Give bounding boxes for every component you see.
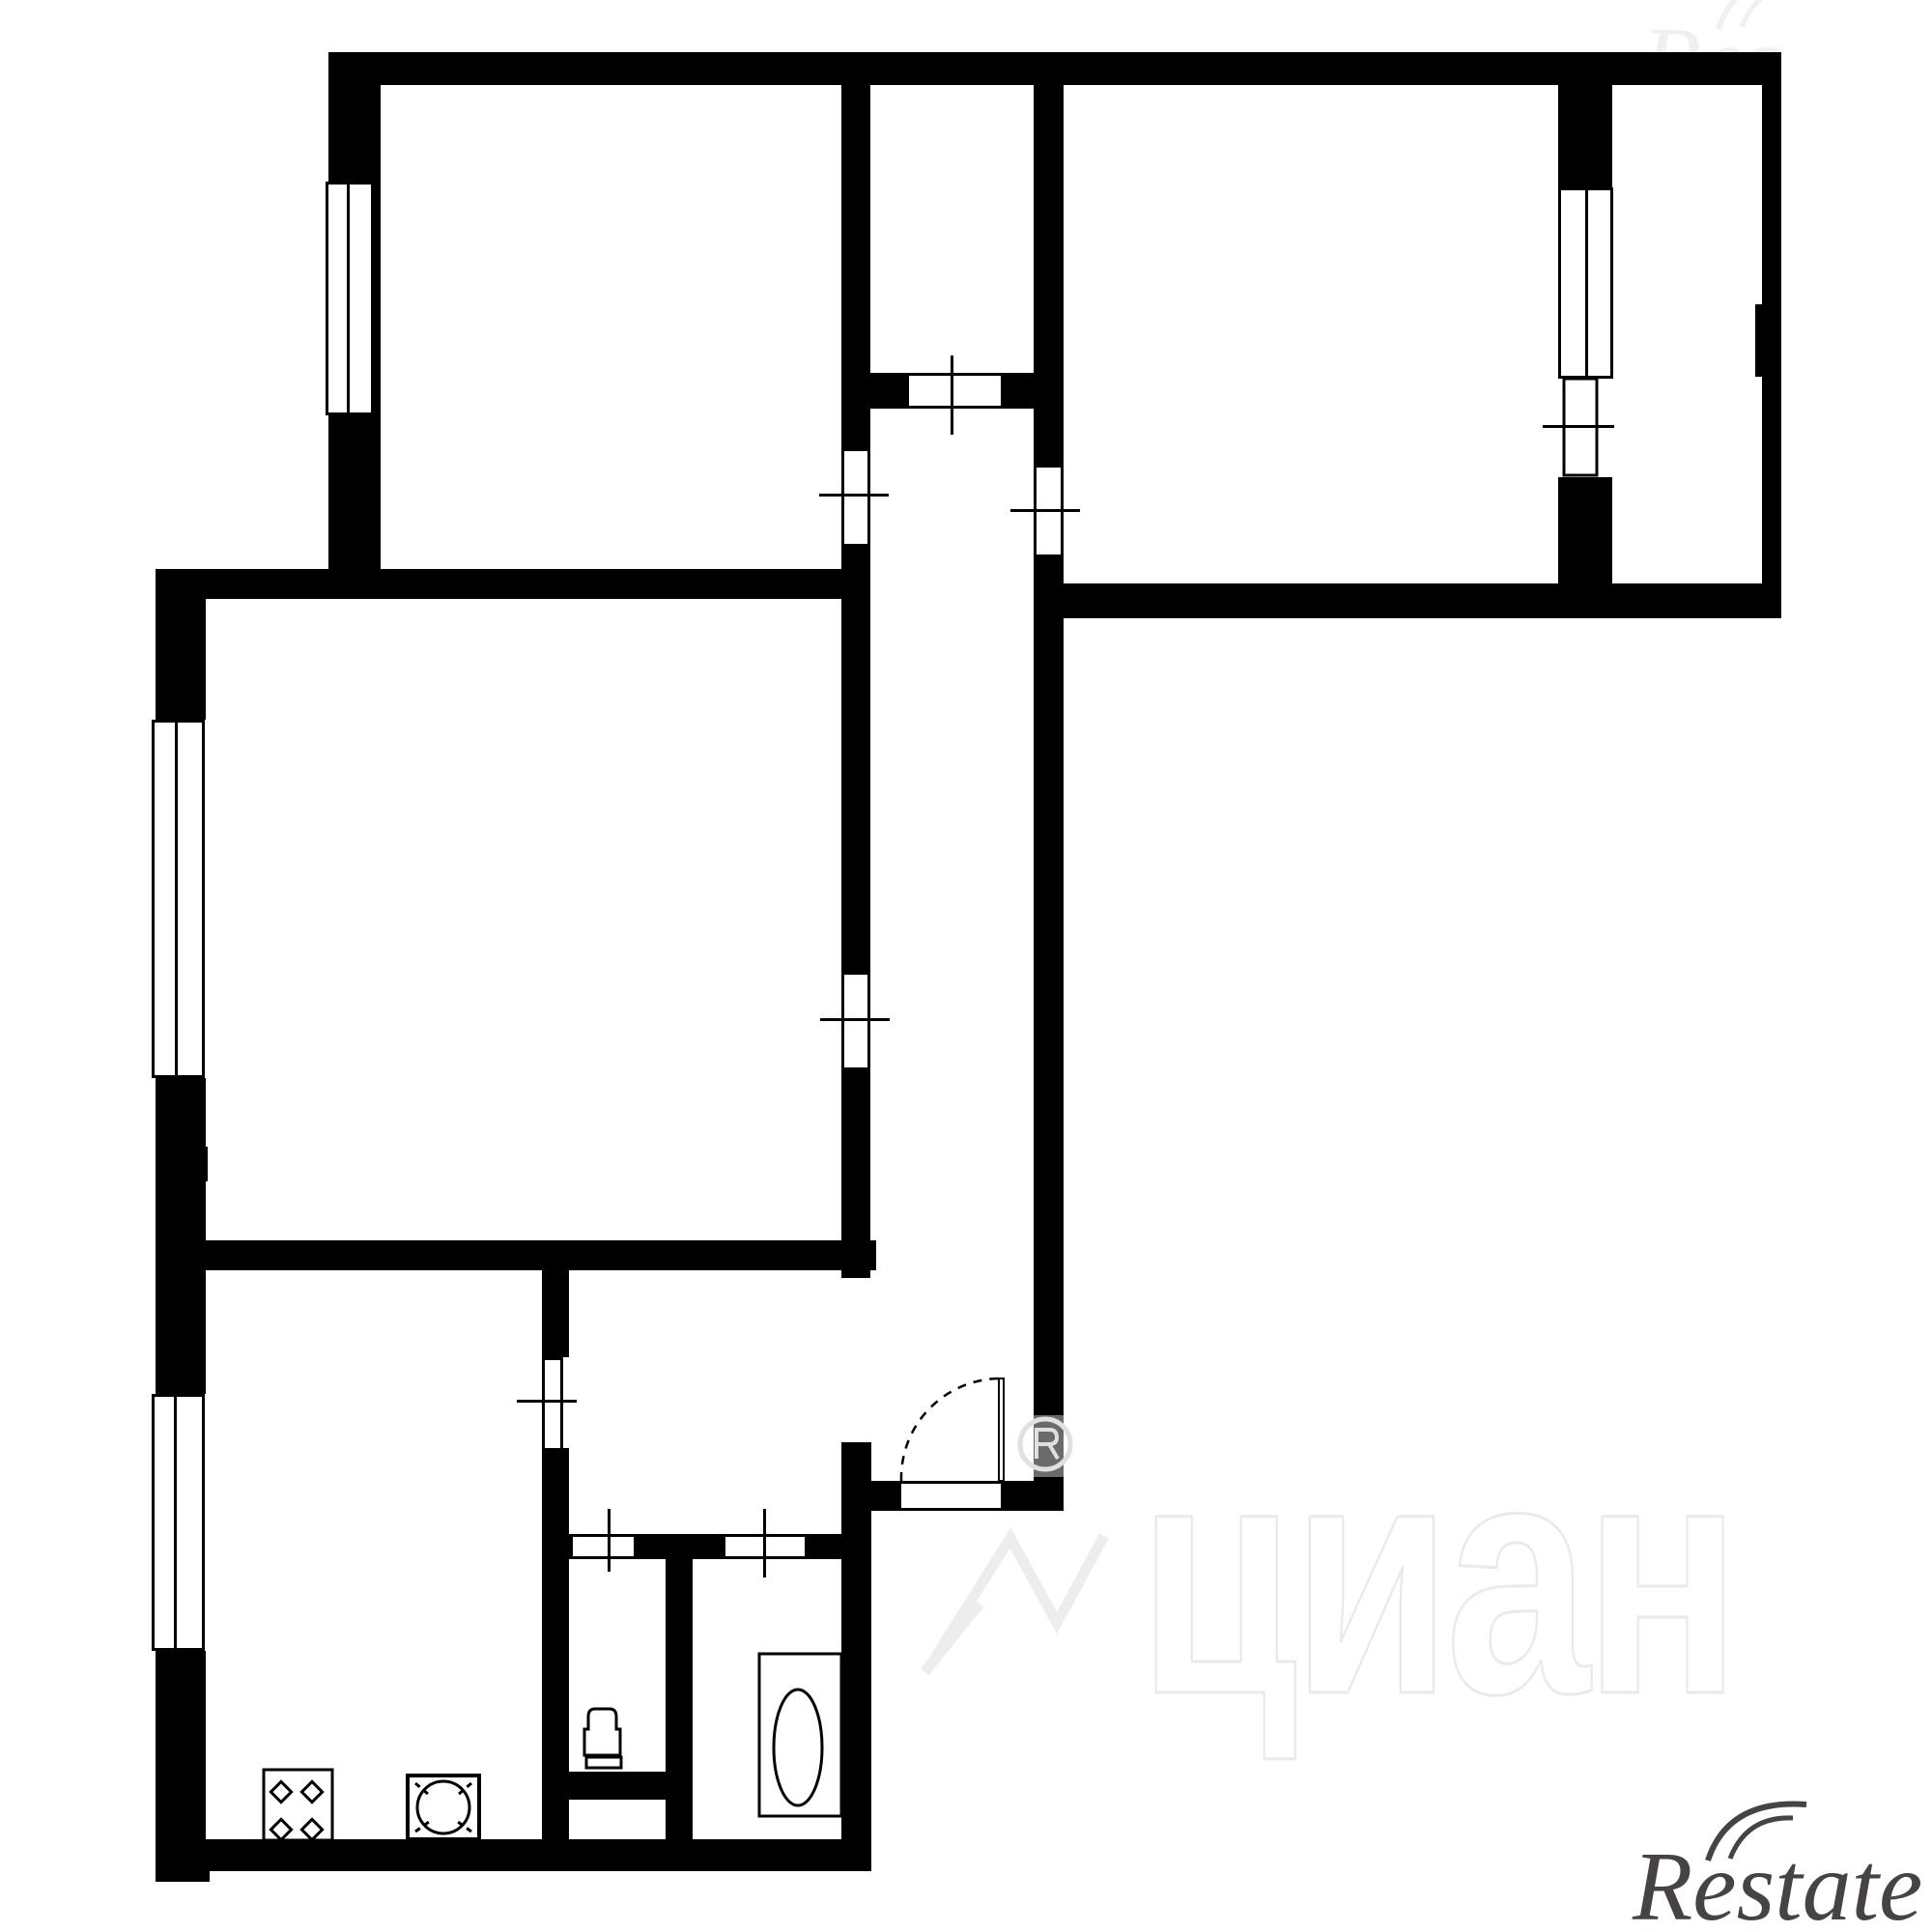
svg-text:Restate: Restate	[1632, 1833, 1922, 1932]
svg-text:циан: циан	[1138, 1391, 1735, 1764]
